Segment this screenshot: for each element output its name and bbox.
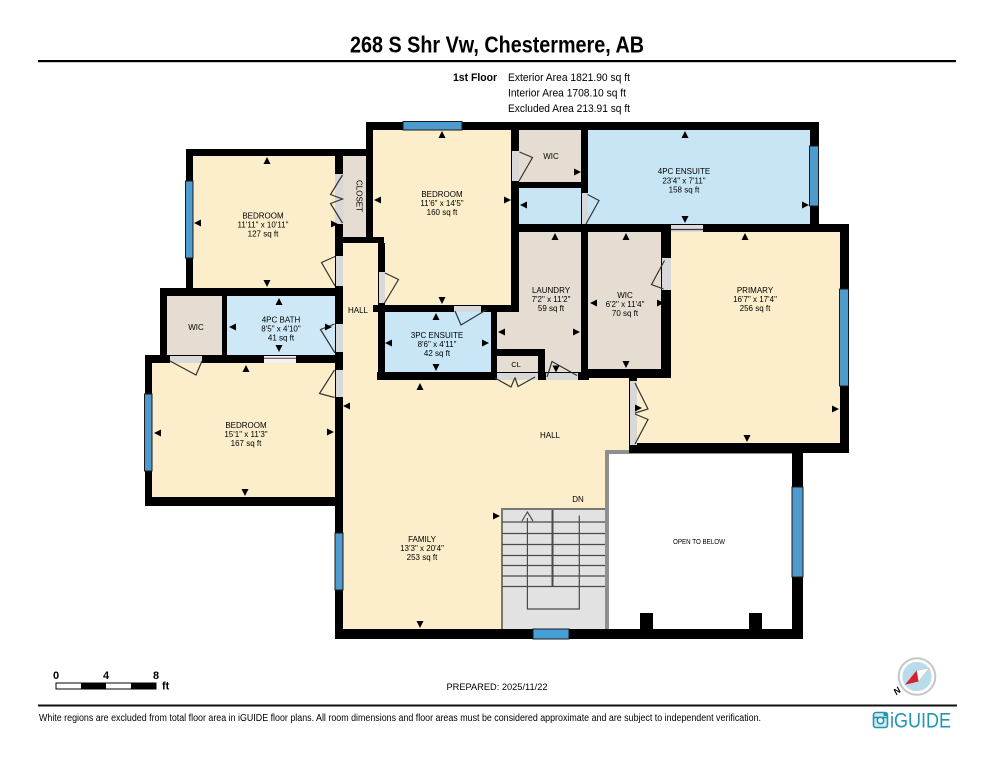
- svg-text:3PC ENSUITE: 3PC ENSUITE: [411, 331, 463, 340]
- svg-text:11'6" x 14'5": 11'6" x 14'5": [420, 199, 463, 208]
- svg-text:PRIMARY: PRIMARY: [737, 286, 774, 295]
- svg-text:BEDROOM: BEDROOM: [242, 212, 284, 221]
- svg-text:iGUIDE: iGUIDE: [890, 710, 951, 733]
- svg-text:158 sq ft: 158 sq ft: [669, 186, 700, 195]
- svg-text:WIC: WIC: [543, 152, 559, 161]
- svg-text:Exterior Area 1821.90 sq ft: Exterior Area 1821.90 sq ft: [508, 72, 630, 84]
- svg-text:4: 4: [103, 670, 110, 682]
- svg-text:ft: ft: [162, 681, 170, 693]
- svg-text:Interior Area 1708.10 sq ft: Interior Area 1708.10 sq ft: [508, 88, 626, 100]
- svg-text:268 S Shr Vw, Chestermere, AB: 268 S Shr Vw, Chestermere, AB: [350, 32, 644, 58]
- svg-text:8: 8: [153, 670, 159, 682]
- svg-text:BEDROOM: BEDROOM: [421, 190, 463, 199]
- svg-text:DN: DN: [572, 495, 584, 504]
- svg-text:8'6" x 4'11": 8'6" x 4'11": [418, 340, 457, 349]
- svg-text:41 sq ft: 41 sq ft: [268, 334, 295, 343]
- svg-text:253 sq ft: 253 sq ft: [407, 553, 438, 562]
- svg-text:59 sq ft: 59 sq ft: [538, 304, 565, 313]
- svg-text:160 sq ft: 160 sq ft: [427, 208, 458, 217]
- svg-text:OPEN TO BELOW: OPEN TO BELOW: [673, 537, 726, 546]
- svg-text:CL: CL: [511, 360, 521, 369]
- svg-text:0: 0: [53, 670, 59, 682]
- svg-text:LAUNDRY: LAUNDRY: [532, 286, 571, 295]
- svg-text:16'7" x 17'4": 16'7" x 17'4": [733, 295, 777, 304]
- svg-text:White regions are excluded fro: White regions are excluded from total fl…: [39, 713, 761, 724]
- svg-text:WIC: WIC: [188, 323, 204, 332]
- svg-text:1st Floor: 1st Floor: [453, 72, 498, 84]
- svg-text:42 sq ft: 42 sq ft: [424, 349, 451, 358]
- svg-text:11'11" x 10'11": 11'11" x 10'11": [238, 221, 289, 230]
- svg-text:WIC: WIC: [617, 291, 633, 300]
- svg-text:BEDROOM: BEDROOM: [225, 421, 267, 430]
- svg-text:FAMILY: FAMILY: [408, 535, 437, 544]
- svg-text:15'1" x 11'3": 15'1" x 11'3": [224, 430, 267, 439]
- svg-text:CLOSET: CLOSET: [355, 180, 364, 212]
- svg-text:127 sq ft: 127 sq ft: [248, 230, 279, 239]
- svg-text:4PC ENSUITE: 4PC ENSUITE: [658, 167, 710, 176]
- svg-text:4PC BATH: 4PC BATH: [262, 316, 301, 325]
- svg-text:256 sq ft: 256 sq ft: [740, 304, 771, 313]
- svg-text:8'5" x 4'10": 8'5" x 4'10": [261, 325, 301, 334]
- svg-text:70 sq ft: 70 sq ft: [612, 309, 639, 318]
- svg-text:7'2" x 11'2": 7'2" x 11'2": [532, 295, 571, 304]
- svg-text:PREPARED: 2025/11/22: PREPARED: 2025/11/22: [447, 682, 548, 693]
- svg-text:6'2" x 11'4": 6'2" x 11'4": [606, 300, 645, 309]
- svg-text:23'4" x 7'11": 23'4" x 7'11": [662, 177, 705, 186]
- svg-text:167 sq ft: 167 sq ft: [231, 439, 262, 448]
- svg-text:HALL: HALL: [348, 306, 369, 315]
- svg-text:Excluded Area 213.91 sq ft: Excluded Area 213.91 sq ft: [508, 103, 630, 115]
- svg-text:13'3" x 20'4": 13'3" x 20'4": [400, 544, 444, 553]
- svg-text:HALL: HALL: [540, 431, 561, 440]
